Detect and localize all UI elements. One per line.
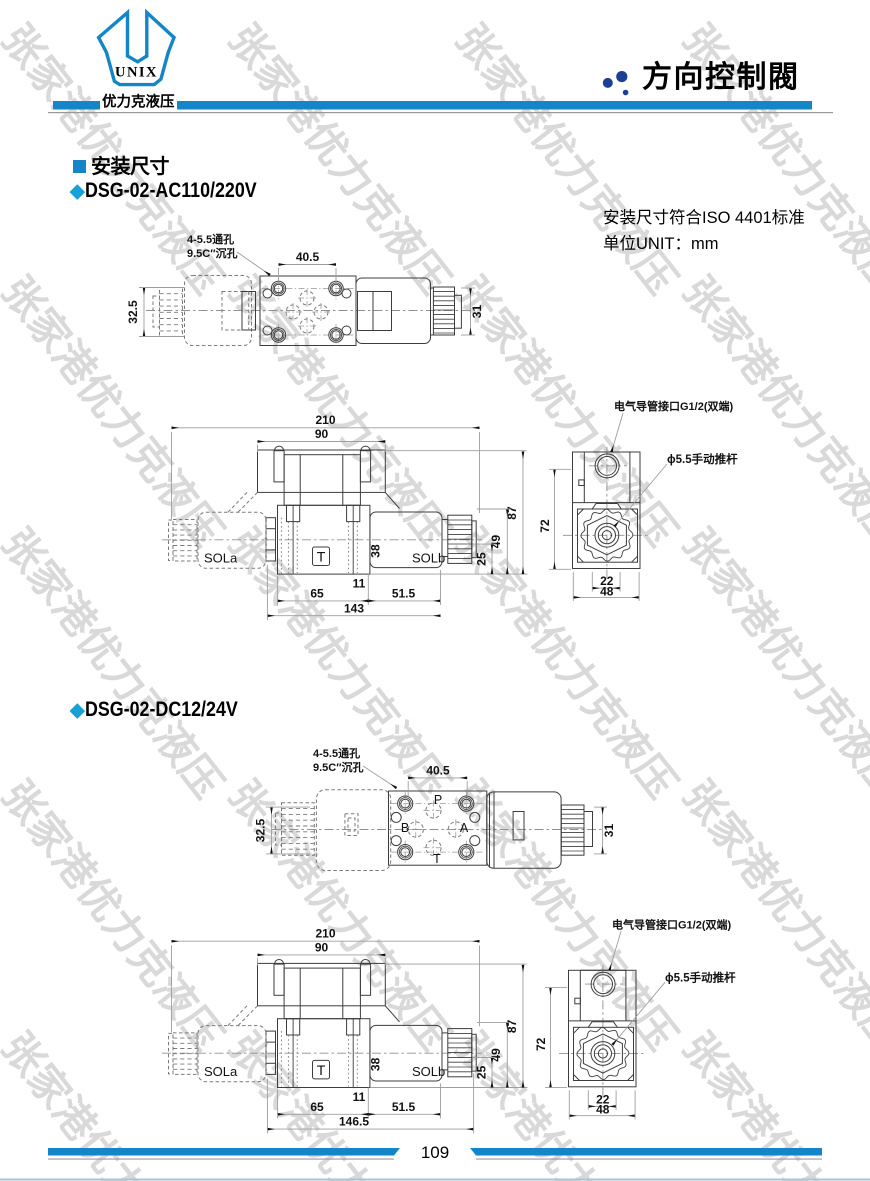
svg-text:38: 38	[369, 1057, 383, 1071]
svg-text:ϕ5.5手动推杆: ϕ5.5手动推杆	[665, 970, 736, 984]
svg-text:31: 31	[470, 305, 484, 319]
svg-text:49: 49	[489, 535, 503, 549]
svg-text:9.5C″沉孔: 9.5C″沉孔	[187, 246, 238, 260]
svg-text:143: 143	[344, 601, 364, 615]
svg-text:49: 49	[489, 1048, 503, 1062]
svg-text:32.5: 32.5	[126, 300, 140, 324]
svg-text:90: 90	[315, 940, 329, 954]
svg-text:B: B	[401, 821, 409, 835]
svg-text:4-5.5通孔: 4-5.5通孔	[187, 233, 234, 246]
svg-text:9.5C″沉孔: 9.5C″沉孔	[313, 760, 364, 774]
svg-text:48: 48	[596, 1103, 610, 1117]
svg-text:40.5: 40.5	[426, 764, 450, 778]
svg-text:32.5: 32.5	[254, 818, 268, 842]
svg-text:65: 65	[310, 587, 324, 601]
svg-text:210: 210	[315, 926, 335, 940]
svg-text:40.5: 40.5	[296, 250, 320, 264]
svg-text:4-5.5通孔: 4-5.5通孔	[313, 747, 360, 760]
svg-text:51.5: 51.5	[392, 1100, 416, 1114]
svg-text:SOLb: SOLb	[412, 1064, 445, 1079]
svg-text:210: 210	[315, 413, 335, 427]
svg-text:109: 109	[421, 1143, 449, 1162]
svg-text:T: T	[317, 549, 326, 565]
svg-text:P: P	[434, 793, 442, 807]
svg-text:SOLb: SOLb	[412, 551, 445, 566]
svg-text:25: 25	[475, 1065, 489, 1079]
svg-text:A: A	[460, 821, 469, 835]
svg-text:电气导管接口G1/2(双端): 电气导管接口G1/2(双端)	[614, 399, 734, 413]
svg-text:146.5: 146.5	[339, 1115, 369, 1129]
svg-text:11: 11	[353, 577, 366, 591]
svg-text:25: 25	[475, 552, 489, 566]
svg-text:72: 72	[534, 1037, 548, 1051]
svg-text:电气导管接口G1/2(双端): 电气导管接口G1/2(双端)	[612, 917, 732, 931]
svg-text:65: 65	[310, 1100, 324, 1114]
svg-text:T: T	[317, 1062, 326, 1078]
svg-text:90: 90	[315, 427, 329, 441]
svg-text:11: 11	[353, 1090, 366, 1104]
svg-text:48: 48	[600, 584, 614, 598]
svg-text:T: T	[433, 852, 441, 866]
svg-text:ϕ5.5手动推杆: ϕ5.5手动推杆	[667, 452, 738, 466]
svg-text:38: 38	[369, 544, 383, 558]
svg-text:72: 72	[538, 519, 552, 533]
svg-text:31: 31	[602, 824, 616, 838]
svg-text:SOLa: SOLa	[204, 1064, 238, 1079]
svg-text:SOLa: SOLa	[204, 551, 238, 566]
svg-text:51.5: 51.5	[392, 587, 416, 601]
